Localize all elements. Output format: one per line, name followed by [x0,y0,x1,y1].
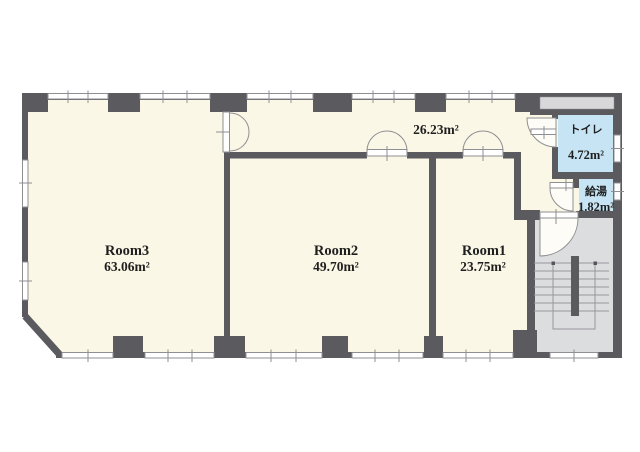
water-heater-name: 給湯 [585,184,607,198]
toilet-bottom-wall [552,172,622,179]
room1-area: 23.75m² [460,259,506,274]
room1-name: Room1 [462,243,506,259]
stair-arrow-up-left [552,262,556,266]
water-heater-left-stub [573,179,579,188]
water-heater-door-leaf [550,183,573,189]
stair-door-leaf [540,212,578,218]
toilet-area: 4.72m² [568,148,604,162]
water-heater-area: 1.82m² [578,200,614,214]
floor-plan-svg: Room3 63.06m² Room2 49.70m² Room1 23.75m… [0,0,640,452]
stair-center-rail [571,256,579,316]
building-floor [26,100,613,352]
room3-name: Room3 [105,243,149,259]
room2-area: 49.70m² [313,259,359,274]
room3-area: 63.06m² [104,259,150,274]
vestibule-wall [514,152,521,214]
room2-name: Room2 [314,243,358,259]
corridor-area: 26.23m² [413,122,459,137]
toilet-left-wall-bottom [552,147,558,172]
stair-arrow-up-right [594,262,598,266]
stair-left-wall [527,214,535,352]
shaft-inset [540,97,614,109]
room3-room2-wall [224,152,230,352]
corridor-wall-b [407,152,463,159]
toilet-name: トイレ [570,123,603,136]
corridor-wall-a [230,152,367,159]
room2-room1-wall [429,158,436,352]
